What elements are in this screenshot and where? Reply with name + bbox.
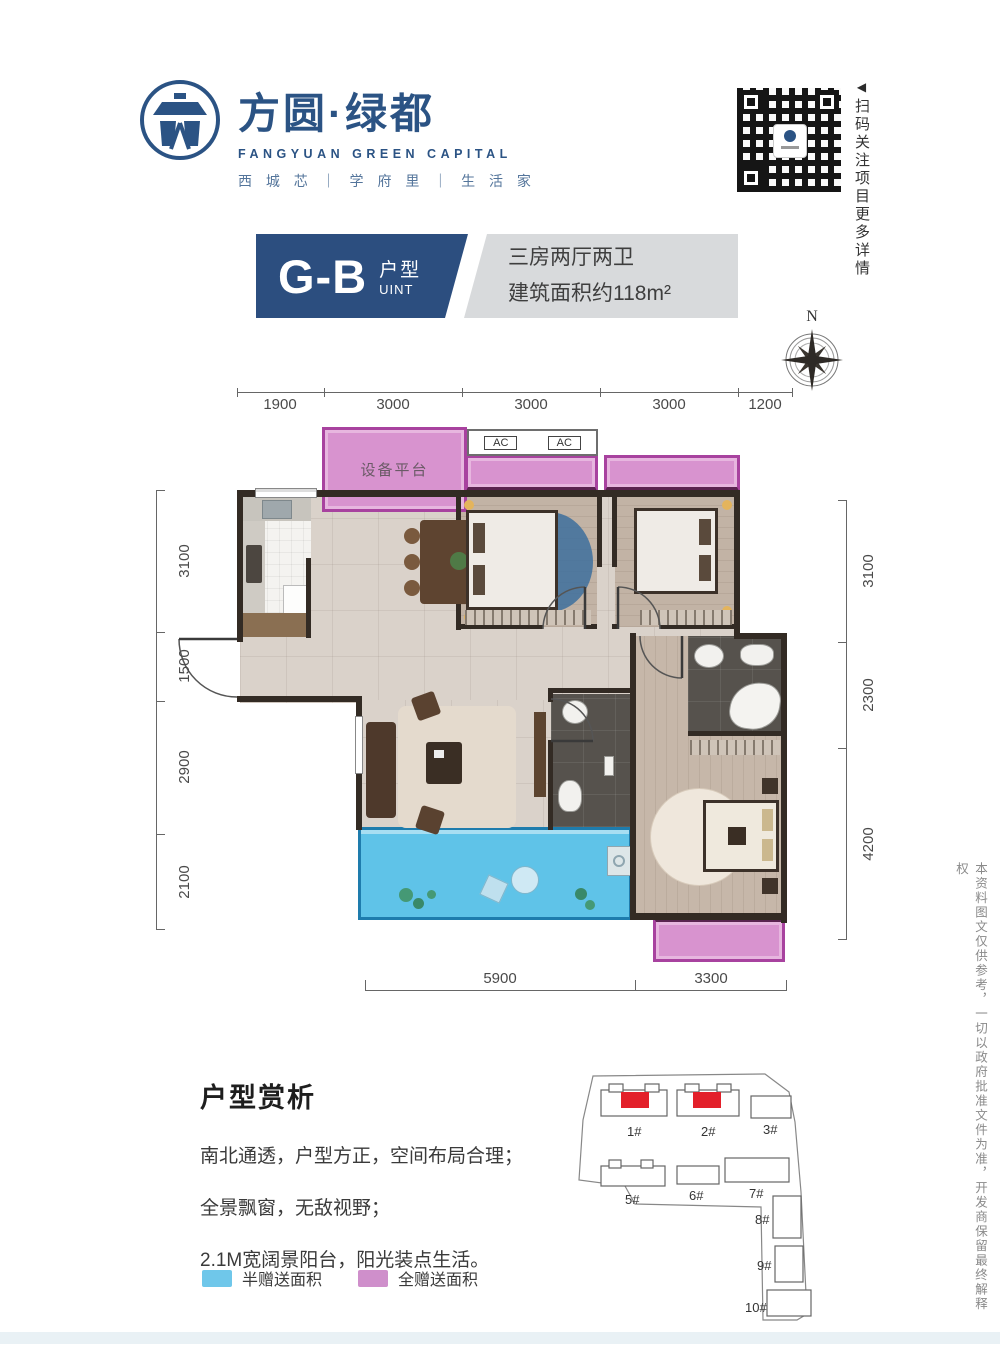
- dim-value: 2100: [176, 865, 193, 898]
- analysis-block: 户型赏析 南北通透，户型方正，空间布局合理； 全景飘窗，无敌视野； 2.1M宽阔…: [200, 1076, 560, 1272]
- dim-tick: [156, 632, 165, 633]
- building-label: 1#: [627, 1124, 642, 1139]
- dim-value: 1200: [748, 396, 781, 413]
- dim-line: [156, 490, 157, 930]
- legend: 半赠送面积 全赠送面积: [202, 1266, 478, 1290]
- dim-tick: [738, 388, 739, 397]
- dim-tick: [838, 500, 847, 501]
- dim-value: 3000: [514, 396, 547, 413]
- dim-tick: [462, 388, 463, 397]
- dim-tick: [156, 701, 165, 702]
- building-label: 6#: [689, 1188, 704, 1203]
- dim-line: [237, 392, 793, 393]
- dim-tick: [786, 980, 787, 990]
- dim-value: 4200: [860, 827, 877, 860]
- dimension-left: 3100 1500 2900 2100: [146, 490, 180, 930]
- highlight-unit-building2: [693, 1092, 721, 1108]
- legend-item-full-gift: 全赠送面积: [358, 1266, 478, 1290]
- dim-value: 2300: [860, 678, 877, 711]
- building-label: 7#: [749, 1186, 764, 1201]
- dim-tick: [324, 388, 325, 397]
- building-label: 2#: [701, 1124, 716, 1139]
- site-plan: 1# 2# 3# 5# 6# 7# 8# 9# 10#: [565, 1062, 860, 1342]
- building-label: 9#: [757, 1258, 772, 1273]
- site-plan-map: 1# 2# 3# 5# 6# 7# 8# 9# 10#: [565, 1062, 860, 1342]
- dim-value: 1900: [263, 396, 296, 413]
- dim-value: 2900: [176, 750, 193, 783]
- dimension-bottom: 5900 3300: [365, 968, 787, 998]
- highlight-unit-building1: [621, 1092, 649, 1108]
- dim-line: [846, 500, 847, 940]
- building-label: 8#: [755, 1212, 770, 1227]
- dim-tick: [156, 929, 165, 930]
- dim-value: 3000: [376, 396, 409, 413]
- dim-tick: [635, 980, 636, 990]
- dim-tick: [237, 388, 238, 397]
- dim-tick: [838, 748, 847, 749]
- dim-line: [365, 990, 787, 991]
- analysis-line: 南北通透，户型方正，空间布局合理；: [200, 1141, 560, 1168]
- legend-swatch-blue: [202, 1270, 232, 1287]
- dim-tick: [792, 388, 793, 397]
- analysis-line: 全景飘窗，无敌视野；: [200, 1193, 560, 1220]
- dim-value: 3100: [860, 554, 877, 587]
- dim-tick: [600, 388, 601, 397]
- dim-tick: [838, 642, 847, 643]
- legend-label: 全赠送面积: [398, 1266, 478, 1290]
- dim-value: 1500: [176, 649, 193, 682]
- dim-value: 5900: [483, 970, 516, 987]
- dim-value: 3000: [652, 396, 685, 413]
- bottom-strip: [0, 1332, 1000, 1344]
- building-label: 3#: [763, 1122, 778, 1137]
- dim-tick: [156, 490, 165, 491]
- dimension-right: 3100 2300 4200: [834, 500, 868, 940]
- legend-swatch-pink: [358, 1270, 388, 1287]
- dim-value: 3300: [694, 970, 727, 987]
- legend-item-half-gift: 半赠送面积: [202, 1266, 322, 1290]
- dim-tick: [156, 834, 165, 835]
- building-label: 10#: [745, 1300, 767, 1315]
- disclaimer-text: 本资料图文仅供参考，一切以政府批准文件为准，开发商保留最终解释权: [952, 862, 990, 1312]
- dim-tick: [838, 939, 847, 940]
- poster-page: { "brand": { "name_cn": "方圆·绿都", "name_e…: [0, 0, 1000, 1344]
- dim-value: 3100: [176, 544, 193, 577]
- legend-label: 半赠送面积: [242, 1266, 322, 1290]
- analysis-title: 户型赏析: [200, 1076, 560, 1115]
- building-label: 5#: [625, 1192, 640, 1207]
- dim-tick: [365, 980, 366, 990]
- dimension-top: 1900 3000 3000 3000 1200: [237, 386, 793, 416]
